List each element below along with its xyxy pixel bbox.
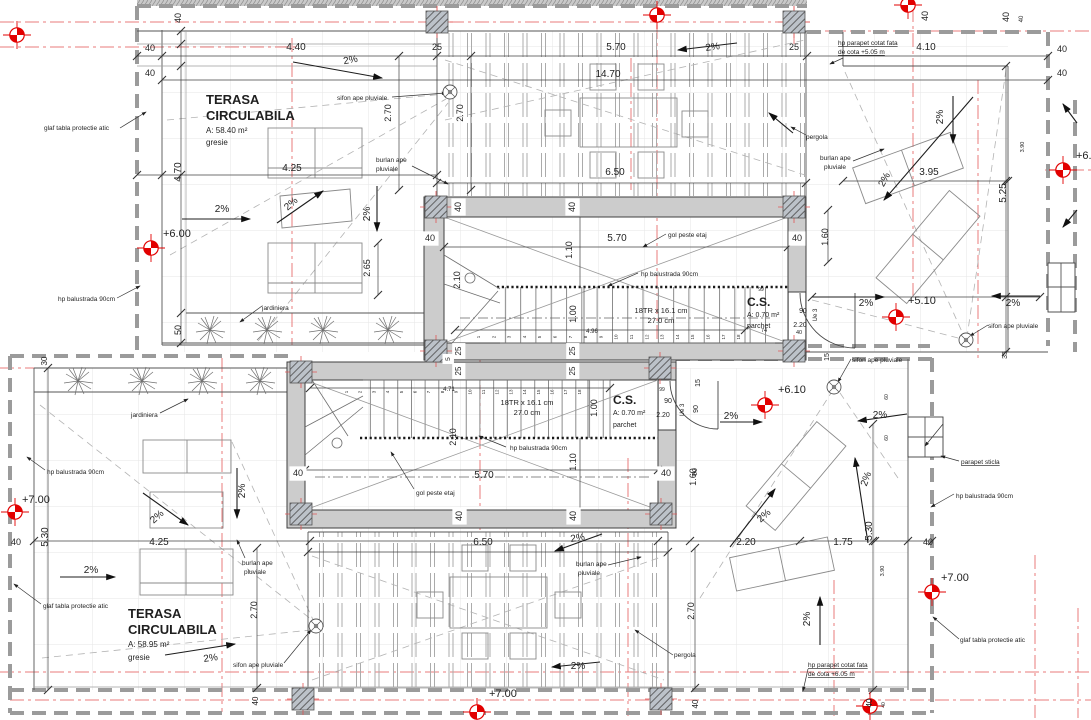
dim-40-stairL-right: 40 [657, 466, 674, 480]
slope-2pct-pergola-low: 2% [570, 532, 586, 545]
dim-2-70-a: 2.70 [383, 104, 393, 122]
svg-text:gresie: gresie [128, 653, 150, 662]
svg-text:5.70: 5.70 [474, 470, 494, 481]
stair-tread-number: 16 [706, 334, 711, 340]
svg-text:1.00: 1.00 [568, 305, 578, 323]
wall-hatch-icon [420, 191, 452, 223]
svg-text:6.50: 6.50 [605, 167, 625, 178]
svg-text:40: 40 [454, 511, 464, 521]
svg-text:40: 40 [568, 511, 578, 521]
slope-2pct-mid-a: 2% [859, 298, 874, 309]
drain-sifon-icon [443, 85, 457, 99]
svg-text:40: 40 [173, 13, 183, 23]
svg-text:2%: 2% [1006, 298, 1021, 309]
wall-hatch-icon [645, 683, 677, 715]
cs-area-upper: A: 0.70 m² [747, 312, 780, 319]
survey-target-icon [894, 0, 922, 19]
dim-40-topleft-a: 40 [145, 43, 155, 53]
dim-5-70-stair-lower: 5.70 [474, 470, 494, 481]
stair-tread-number: 15 [690, 334, 695, 340]
svg-text:2.20: 2.20 [736, 537, 756, 548]
svg-text:burlan ape: burlan ape [242, 560, 273, 567]
dim-3-95: 3.95 [919, 167, 939, 178]
svg-text:5.70: 5.70 [607, 233, 627, 244]
dim-90-lower: 90 [664, 398, 672, 405]
svg-text:A: 0.70 m²: A: 0.70 m² [613, 410, 646, 417]
svg-text:2%: 2% [237, 484, 248, 499]
svg-text:2.10: 2.10 [448, 428, 458, 446]
drain-sifon-icon [309, 619, 323, 633]
wall-hatch-icon [645, 498, 677, 530]
slope-2pct-mid-b: 2% [1006, 298, 1021, 309]
dim-40-bottom-4: 40 [881, 702, 887, 708]
stair-tread-number: 17 [563, 389, 568, 395]
svg-text:15: 15 [824, 353, 831, 361]
dim-40-stair-right: 40 [788, 231, 805, 245]
dim-2-70-lowermid: 2.70 [686, 602, 696, 620]
stair-tread-number: 15 [536, 389, 541, 395]
room-title-lower-2: CIRCULABILA [128, 622, 217, 637]
svg-text:hp parapet cotat fata: hp parapet cotat fata [808, 662, 868, 669]
svg-text:hp balustrada 90cm: hp balustrada 90cm [956, 493, 1013, 500]
dim-2-10-lower: 2.10 [448, 428, 458, 446]
svg-text:4.96: 4.96 [586, 329, 598, 335]
stair-tread-number: 13 [508, 389, 513, 395]
svg-text:40: 40 [792, 233, 802, 243]
note-burlan-upperright-2: pluviale [824, 164, 846, 171]
dim-30-mid: 30 [40, 356, 49, 365]
dim-4-10-top: 4.10 [916, 42, 936, 53]
note-balustrada-lowerright: hp balustrada 90cm [956, 493, 1013, 500]
svg-text:pergola: pergola [806, 134, 828, 141]
dim-25-band-r2: 25 [566, 363, 579, 379]
svg-text:2.70: 2.70 [249, 601, 259, 619]
dim-2-65: 2.65 [362, 259, 372, 277]
note-burlan-lowermid-2: pluviale [578, 570, 600, 577]
elev-plus-6-00: +6.00 [163, 228, 191, 240]
dim-40-lowerright: 40 [923, 537, 933, 547]
svg-text:99: 99 [659, 387, 665, 393]
svg-text:1.60: 1.60 [688, 468, 698, 486]
svg-text:40: 40 [251, 696, 260, 705]
dim-25-band-l1: 25 [452, 343, 465, 359]
svg-text:40: 40 [425, 233, 435, 243]
svg-text:2.20: 2.20 [656, 412, 670, 419]
room-area-upper: A: 58.40 m² [206, 126, 248, 135]
survey-target-icon [137, 234, 165, 262]
svg-text:pergola: pergola [674, 652, 696, 659]
dim-2-70-b: 2.70 [455, 104, 465, 122]
dim-40-upper-door: 40 [796, 330, 802, 336]
svg-text:A: 58.40 m²: A: 58.40 m² [206, 126, 248, 135]
cs-finish-lower: parchet [613, 422, 636, 429]
svg-text:35: 35 [1002, 351, 1009, 359]
elev-plus-6-right: +6.10 [1076, 150, 1091, 162]
svg-text:3.95: 3.95 [919, 167, 939, 178]
svg-text:2.70: 2.70 [455, 104, 465, 122]
note-sifon-midright: sifon ape pluviale [988, 323, 1039, 330]
note-parapet-sticla: parapet sticla [961, 459, 1000, 466]
svg-text:gresie: gresie [206, 138, 228, 147]
tag-ue3-lower: Ue 3 [680, 403, 686, 416]
svg-text:4.25: 4.25 [282, 163, 302, 174]
svg-text:2.70: 2.70 [686, 602, 696, 620]
svg-text:40: 40 [661, 468, 671, 478]
svg-text:1.10: 1.10 [564, 241, 574, 259]
dim-35-midright: 35 [1002, 351, 1009, 359]
dim-40-stair-top-l: 40 [451, 198, 465, 215]
dim-40-stairL-left: 40 [289, 466, 306, 480]
svg-text:18TR x 16.1 cm: 18TR x 16.1 cm [501, 398, 554, 407]
slope-2pct-gresie: 2% [203, 652, 219, 665]
dim-90-lower-b: 90 [693, 405, 700, 413]
svg-text:40: 40 [145, 68, 155, 78]
survey-target-icon [3, 21, 31, 49]
svg-text:1.60: 1.60 [820, 228, 830, 246]
dim-15-midright: 15 [824, 353, 831, 361]
dim-14-70: 14.70 [595, 69, 620, 80]
dim-40-bottom-1: 40 [251, 696, 260, 705]
svg-text:jardiniera: jardiniera [261, 305, 289, 312]
svg-text:2.10: 2.10 [452, 271, 462, 289]
floor-plan-svg: 4040404.402%255.7014.702%25hp parapet co… [0, 0, 1091, 720]
svg-text:pluviale: pluviale [824, 164, 846, 171]
svg-text:glaf tabla protectie atic: glaf tabla protectie atic [43, 603, 109, 610]
svg-text:40: 40 [796, 330, 802, 336]
wall-hatch-icon [421, 6, 453, 38]
svg-text:25: 25 [454, 366, 463, 375]
stair-tread-number: 12 [644, 334, 649, 340]
svg-text:2%: 2% [203, 652, 219, 665]
wall-hatch-icon [644, 352, 676, 384]
dim-1-75: 1.75 [833, 537, 853, 548]
svg-text:27.0 cm: 27.0 cm [648, 316, 675, 325]
slope-2pct-top-center: 2% [705, 41, 721, 54]
note-balustrada-upperleft: hp balustrada 90cm [58, 296, 115, 303]
cs-finish-upper: parchet [747, 323, 770, 330]
svg-text:hp balustrada 90cm: hp balustrada 90cm [641, 271, 698, 278]
slope-2pct-upperright-v: 2% [935, 110, 946, 125]
svg-text:TERASA: TERASA [128, 606, 182, 621]
dim-5-70-stair-upper: 5.70 [607, 233, 627, 244]
dim-40-topright-v2: 40 [1001, 12, 1011, 22]
cs-title-upper: C.S. [747, 295, 770, 309]
svg-text:25: 25 [789, 42, 799, 52]
svg-text:6.50: 6.50 [473, 537, 493, 548]
dim-25-band-r1: 25 [566, 343, 579, 359]
wall-hatch-icon [287, 683, 319, 715]
stair-tread-number: 18 [577, 389, 582, 395]
svg-text:hp balustrada 90cm: hp balustrada 90cm [58, 296, 115, 303]
upper-stair-treads [500, 287, 775, 343]
svg-text:sifon ape pluviale: sifon ape pluviale [337, 95, 388, 102]
dim-99-lower: 99 [659, 387, 665, 393]
svg-text:40: 40 [865, 698, 874, 707]
svg-text:CIRCULABILA: CIRCULABILA [128, 622, 217, 637]
note-stair-lower-2: 27.0 cm [514, 408, 541, 417]
slope-2pct-lowerleft: 2% [84, 565, 99, 576]
dim-40-topright-v3: 40 [1019, 15, 1025, 22]
svg-text:5.70: 5.70 [606, 42, 626, 53]
dim-5-70-top: 5.70 [606, 42, 626, 53]
dim-60-lr-a: 60 [884, 394, 890, 400]
svg-text:25: 25 [432, 42, 442, 52]
svg-text:gol peste etaj: gol peste etaj [416, 490, 455, 497]
slope-2pct-c: 2% [724, 411, 739, 422]
svg-text:+6.00: +6.00 [163, 228, 191, 240]
svg-text:40: 40 [1001, 12, 1011, 22]
dim-25-top-left: 25 [432, 42, 442, 52]
slope-2pct-right-mid-v: 2% [802, 612, 813, 627]
dim-2-70-lowerleft: 2.70 [249, 601, 259, 619]
note-sifon-lowerleft: sifon ape pluviale [233, 662, 284, 669]
dim-1-60-lower: 1.60 [688, 468, 698, 486]
note-burlan-topleft-2: pluviale [376, 166, 398, 173]
wall-hatch-icon [285, 356, 317, 388]
svg-text:5: 5 [445, 357, 452, 361]
dim-40-topright-v1: 40 [920, 11, 930, 21]
upper-right-window [1048, 263, 1075, 312]
svg-text:+7.00: +7.00 [941, 572, 969, 584]
dim-40-bottom-2: 40 [691, 699, 700, 708]
drain-sifon-icon [959, 333, 973, 347]
note-glaf-lowerleft: glaf tabla protectie atic [43, 603, 109, 610]
stair-tread-number: 12 [495, 389, 500, 395]
note-glaf-upperleft: glaf tabla protectie atic [44, 125, 110, 132]
svg-text:C.S.: C.S. [747, 295, 770, 309]
room-finish-upper: gresie [206, 138, 228, 147]
room-title-lower-1: TERASA [128, 606, 182, 621]
stair-tread-number: 17 [721, 334, 726, 340]
svg-text:4.40: 4.40 [286, 42, 306, 53]
note-parapet-bottom-2: de cota +6.05 m [808, 671, 855, 678]
svg-text:99: 99 [758, 287, 764, 293]
svg-text:gol peste etaj: gol peste etaj [668, 232, 707, 239]
note-gol-lower: gol peste etaj [416, 490, 455, 497]
svg-text:40: 40 [1019, 15, 1025, 22]
dim-4-96: 4.96 [586, 329, 598, 335]
svg-text:2%: 2% [705, 41, 721, 54]
dim-5-30-right: 5.30 [864, 521, 875, 541]
room-title-upper-1: TERASA [206, 92, 260, 107]
dim-50-upper: 50 [173, 325, 183, 335]
note-burlan-lowerleft-2: pluviale [244, 569, 266, 576]
note-parapet-top-1: hp parapet cotat fata [838, 40, 898, 47]
svg-text:hp balustrada 90cm: hp balustrada 90cm [510, 445, 567, 452]
svg-text:27.0 cm: 27.0 cm [514, 408, 541, 417]
svg-text:parapet sticla: parapet sticla [961, 459, 1000, 466]
dim-3-90-upper: 3.90 [1020, 142, 1026, 153]
svg-text:40: 40 [11, 537, 21, 547]
svg-text:4.25: 4.25 [149, 537, 169, 548]
dim-1-60-upper: 1.60 [820, 228, 830, 246]
svg-text:de cota +6.05 m: de cota +6.05 m [808, 671, 855, 678]
slope-2pct-down-upperleft: 2% [362, 207, 373, 222]
note-balustrada-stair-upper: hp balustrada 90cm [641, 271, 698, 278]
svg-text:90: 90 [693, 405, 700, 413]
svg-text:2%: 2% [802, 612, 813, 627]
dim-40-topleft-b: 40 [145, 68, 155, 78]
note-glaf-lowerright: glaf tabla protectie atic [960, 637, 1026, 644]
elev-plus-7-00-left: +7.00 [22, 494, 50, 506]
svg-text:50: 50 [173, 325, 183, 335]
svg-text:40: 40 [920, 11, 930, 21]
svg-text:burlan ape: burlan ape [576, 561, 607, 568]
dim-1-00-lower: 1.00 [589, 399, 599, 417]
dim-6-50-upper: 6.50 [605, 167, 625, 178]
svg-text:A: 58.95 m²: A: 58.95 m² [128, 640, 170, 649]
svg-text:4.70: 4.70 [173, 162, 184, 182]
svg-text:3.90: 3.90 [880, 566, 886, 577]
svg-text:pluviale: pluviale [244, 569, 266, 576]
slope-2pct-left: 2% [215, 204, 230, 215]
stair-tread-number: 14 [675, 334, 680, 340]
dim-5-25: 5.25 [998, 183, 1009, 203]
note-pergola-upper: pergola [806, 134, 828, 141]
svg-text:de cota +5.05 m: de cota +5.05 m [838, 49, 885, 56]
dim-4-25-lower: 4.25 [149, 537, 169, 548]
tag-ue3-upper: Ue 3 [813, 308, 819, 321]
stair-tread-number: 14 [522, 389, 527, 395]
svg-text:4.10: 4.10 [916, 42, 936, 53]
svg-text:pluviale: pluviale [376, 166, 398, 173]
dim-25-top-right: 25 [789, 42, 799, 52]
svg-text:hp balustrada 90cm: hp balustrada 90cm [47, 469, 104, 476]
svg-text:15: 15 [695, 379, 702, 387]
svg-text:+7.00: +7.00 [489, 688, 517, 700]
note-sifon-topleft: sifon ape pluviale [337, 95, 388, 102]
note-stair-lower-1: 18TR x 16.1 cm [501, 398, 554, 407]
svg-text:3.90: 3.90 [1020, 142, 1026, 153]
svg-text:+7.00: +7.00 [22, 494, 50, 506]
floor-plan-page: 4040404.402%255.7014.702%25hp parapet co… [0, 0, 1091, 720]
note-balustrada-stair-lower: hp balustrada 90cm [510, 445, 567, 452]
svg-text:25: 25 [568, 346, 577, 355]
svg-text:40: 40 [567, 202, 577, 212]
svg-text:+6.10: +6.10 [778, 384, 806, 396]
svg-text:1.10: 1.10 [568, 453, 578, 471]
svg-text:5.30: 5.30 [40, 527, 51, 547]
glass-parapet-window [908, 417, 943, 457]
svg-text:2.20: 2.20 [793, 322, 807, 329]
svg-text:jardiniera: jardiniera [130, 412, 158, 419]
svg-text:2%: 2% [873, 410, 888, 421]
dim-4-40: 4.40 [286, 42, 306, 53]
dim-40-stair-left: 40 [421, 231, 438, 245]
svg-text:glaf tabla protectie atic: glaf tabla protectie atic [44, 125, 110, 132]
svg-text:+5.10: +5.10 [908, 295, 936, 307]
elev-plus-7-00-bottom: +7.00 [489, 688, 517, 700]
svg-text:Ue 3: Ue 3 [813, 308, 819, 321]
dim-99-upper: 99 [758, 287, 764, 293]
dim-40-bottom-3: 40 [865, 698, 874, 707]
drain-sifon-icon [827, 380, 841, 394]
svg-text:1.00: 1.00 [589, 399, 599, 417]
elev-plus-6-10: +6.10 [778, 384, 806, 396]
svg-text:A: 0.70 m²: A: 0.70 m² [747, 312, 780, 319]
svg-text:parchet: parchet [613, 422, 636, 429]
svg-text:40: 40 [691, 699, 700, 708]
stair-tread-number: 13 [660, 334, 665, 340]
dim-2-20-lower: 2.20 [656, 412, 670, 419]
cs-title-lower: C.S. [613, 393, 636, 407]
dim-1-00-upper: 1.00 [568, 305, 578, 323]
dim-1-10-lower: 1.10 [568, 453, 578, 471]
svg-text:25: 25 [568, 366, 577, 375]
dim-4-25-upper: 4.25 [282, 163, 302, 174]
stair-tread-number: 10 [614, 334, 619, 340]
slope-2pct-lowerright-a: 2% [873, 410, 888, 421]
survey-target-icon [463, 698, 491, 720]
note-stair-upper-2: 27.0 cm [648, 316, 675, 325]
svg-text:2%: 2% [859, 298, 874, 309]
note-burlan-lowermid-1: burlan ape [576, 561, 607, 568]
note-jardiniera-lower: jardiniera [130, 412, 158, 419]
dim-90-upper: 90 [799, 308, 807, 315]
svg-text:2%: 2% [362, 207, 373, 222]
dim-25-band-l2: 25 [452, 363, 465, 379]
svg-text:sifon ape pluviale: sifon ape pluviale [988, 323, 1039, 330]
dim-40-stairL-b1: 40 [452, 507, 466, 524]
svg-text:hp parapet cotat fata: hp parapet cotat fata [838, 40, 898, 47]
room-finish-lower: gresie [128, 653, 150, 662]
dim-2-20-lowerright: 2.20 [736, 537, 756, 548]
svg-text:sifon ape pluviale: sifon ape pluviale [852, 357, 903, 364]
wall-hatch-icon [285, 498, 317, 530]
svg-text:2%: 2% [935, 110, 946, 125]
svg-text:40: 40 [293, 468, 303, 478]
wall-hatch-icon [778, 335, 810, 367]
svg-text:60: 60 [884, 435, 890, 441]
dim-5-band: 5 [442, 354, 453, 364]
note-balustrada-lowerleft: hp balustrada 90cm [47, 469, 104, 476]
dim-5-30-left: 5.30 [40, 527, 51, 547]
slope-2pct-down-left: 2% [237, 484, 248, 499]
wall-hatch-icon [778, 191, 810, 223]
dim-60-lr-b: 60 [884, 435, 890, 441]
dim-2-20-upper: 2.20 [793, 322, 807, 329]
svg-text:2.70: 2.70 [383, 104, 393, 122]
svg-text:90: 90 [799, 308, 807, 315]
dim-40-right-a: 40 [1057, 44, 1067, 54]
note-jardiniera-upper: jardiniera [261, 305, 289, 312]
svg-text:60: 60 [884, 394, 890, 400]
note-pergola-lower: pergola [674, 652, 696, 659]
stair-tread-number: 18 [736, 334, 741, 340]
note-sifon-mid: sifon ape pluviale [852, 357, 903, 364]
slope-2pct-pergola-low2: 2% [571, 661, 586, 672]
svg-text:40: 40 [1057, 44, 1067, 54]
dim-40-left-low: 40 [11, 537, 21, 547]
room-title-upper-2: CIRCULABILA [206, 108, 295, 123]
svg-text:90: 90 [664, 398, 672, 405]
dim-6-50-lower: 6.50 [473, 537, 493, 548]
dim-4-70-left: 4.70 [173, 162, 184, 182]
stair-tread-number: 11 [629, 334, 634, 339]
svg-text:pluviale: pluviale [578, 570, 600, 577]
dim-15-lower-a: 15 [695, 379, 702, 387]
svg-text:C.S.: C.S. [613, 393, 636, 407]
dim-40-stairL-b2: 40 [566, 507, 580, 524]
dim-1-10-upper: 1.10 [564, 241, 574, 259]
wall-hatch-icon [778, 6, 810, 38]
lower-stair-treads [363, 380, 610, 438]
stair-tread-number: 16 [550, 389, 555, 395]
elev-plus-5-10: +5.10 [908, 295, 936, 307]
svg-text:glaf tabla protectie atic: glaf tabla protectie atic [960, 637, 1026, 644]
dim-40-stair-top-r: 40 [565, 198, 579, 215]
svg-text:parchet: parchet [747, 323, 770, 330]
